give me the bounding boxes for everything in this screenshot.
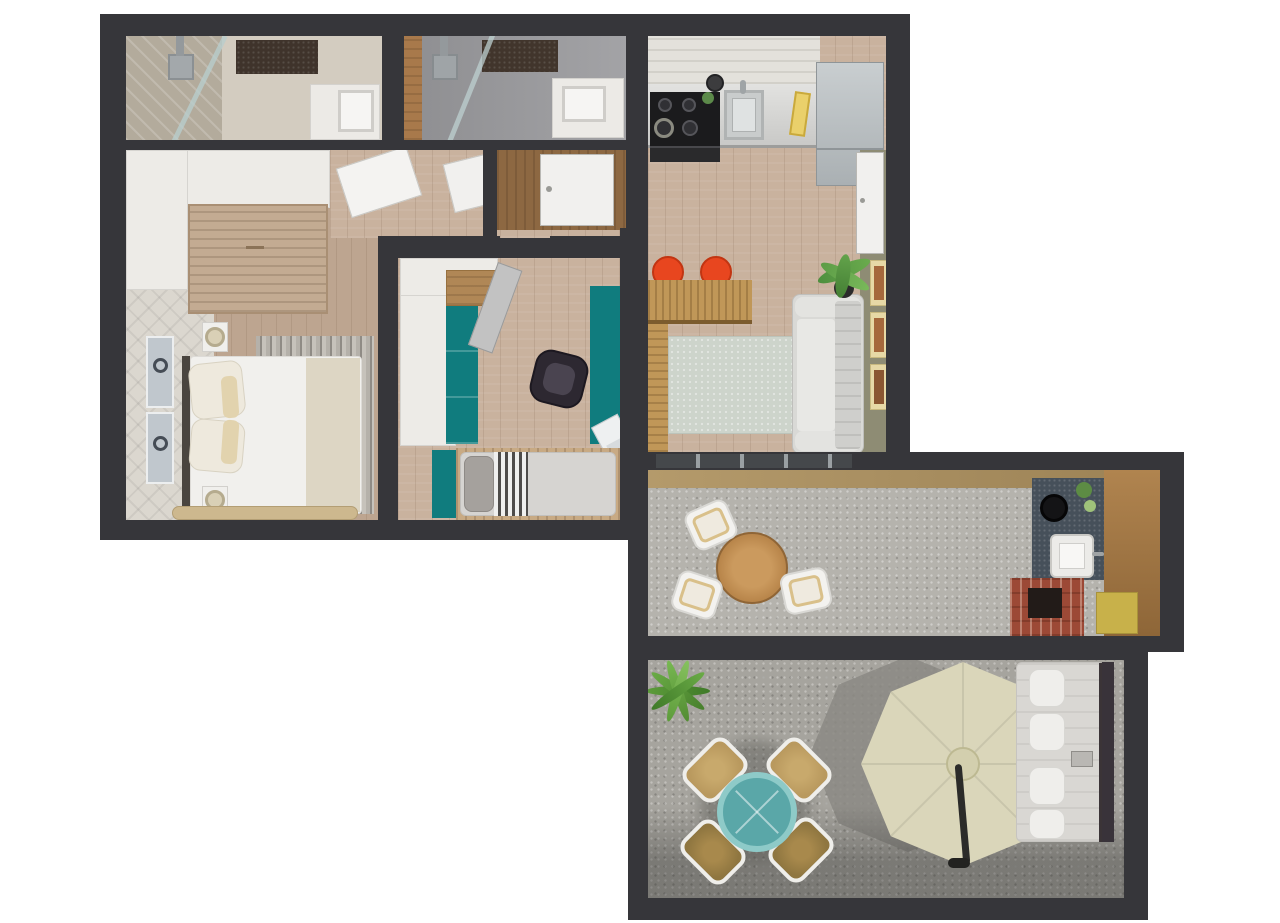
- art-print: [874, 318, 884, 352]
- sofa-seat: [797, 319, 835, 431]
- bed-pillow: [464, 456, 494, 512]
- chair-cushion: [787, 574, 824, 608]
- folded-blanket: [306, 358, 360, 512]
- wall-art-bw: [146, 336, 174, 408]
- kids-room-office: [398, 258, 620, 520]
- accent-cushion: [220, 419, 239, 464]
- shower-mat: [236, 40, 318, 74]
- balcony-chair: [778, 565, 834, 616]
- wall-bedroom-office: [378, 236, 398, 520]
- umbrella-base: [948, 858, 970, 868]
- sofa-back: [835, 301, 861, 449]
- yellow-mat: [1096, 592, 1138, 634]
- balcony-side-door: [856, 152, 884, 254]
- faucet: [740, 80, 746, 94]
- accent-cushion: [221, 375, 240, 418]
- hall-divider-wall: [483, 150, 497, 238]
- sink-basin: [732, 98, 756, 132]
- double-sun-lounger: [1016, 662, 1104, 842]
- chair-seat: [541, 361, 577, 397]
- grass-plant: [648, 660, 711, 722]
- wardrobe-handles: [246, 246, 264, 249]
- shower-arm: [176, 36, 184, 56]
- kitchen-living-room: [648, 36, 886, 452]
- bar-counter: [648, 280, 752, 324]
- striped-blanket: [494, 452, 528, 516]
- vanity-sink: [338, 90, 374, 132]
- hob-burner: [682, 98, 696, 112]
- living-rug: [668, 336, 796, 434]
- shower-mat: [482, 40, 558, 72]
- outdoor-sink: [1050, 534, 1094, 578]
- tiled-wall-band: [126, 36, 222, 140]
- brick-backsplash: [648, 36, 820, 84]
- lounger-pillow: [1029, 669, 1065, 707]
- potted-plant: [812, 248, 876, 304]
- floor-plan-stage: [0, 0, 1280, 923]
- garden-floor: [648, 660, 1124, 898]
- shower-arm: [440, 36, 448, 56]
- bed-headboard-panel: [432, 450, 456, 518]
- vanity-sink: [562, 86, 606, 122]
- hob-burner: [682, 120, 698, 136]
- wheel-print: [153, 358, 168, 373]
- office-chair: [526, 346, 591, 411]
- wall-art: [870, 312, 886, 358]
- wall-art: [870, 364, 886, 410]
- round-wood-table: [716, 532, 788, 604]
- wall-office-top-left: [378, 236, 500, 258]
- art-print: [874, 266, 884, 300]
- chair-cushion: [691, 506, 732, 545]
- wardrobe-white: [126, 150, 188, 290]
- open-door-panel: [336, 150, 422, 218]
- wall-art: [870, 260, 886, 306]
- chair-cushion: [677, 577, 716, 614]
- lounger-pillow: [1029, 713, 1065, 751]
- round-grill: [1040, 494, 1068, 522]
- lounger-pillow: [1029, 767, 1065, 805]
- herb-pot: [1084, 500, 1096, 512]
- herb-pot: [702, 92, 714, 104]
- foot-bench: [172, 506, 358, 520]
- lounger-pillow: [1029, 809, 1065, 839]
- shower-head: [432, 54, 458, 80]
- wheel-print: [153, 436, 168, 451]
- hob-burner: [654, 118, 674, 138]
- wood-accent-strip: [404, 36, 422, 140]
- shower-head: [168, 54, 194, 80]
- wardrobe-wood-top: [188, 204, 328, 314]
- lounger-tray: [1071, 751, 1093, 767]
- bbq-opening: [1028, 588, 1062, 618]
- hob-burner: [658, 98, 672, 112]
- umbrella-cap: [946, 747, 980, 781]
- art-print: [874, 370, 884, 404]
- living-room-window: [656, 454, 852, 468]
- table-lamp: [205, 327, 225, 347]
- sink-basin: [1059, 543, 1085, 569]
- cooking-pot: [706, 74, 724, 92]
- outdoor-faucet: [1092, 552, 1104, 556]
- wall-art-bw: [146, 412, 174, 484]
- door-handle: [546, 186, 552, 192]
- hallway: [330, 150, 626, 238]
- brick-bbq: [1010, 578, 1084, 636]
- oven: [650, 146, 720, 162]
- bathroom-2: [404, 36, 626, 140]
- sofa: [792, 294, 864, 452]
- garden-walls: [628, 640, 1148, 920]
- balcony-walls: [628, 452, 1184, 652]
- glass-partition: [446, 36, 496, 140]
- teal-round-table: [717, 772, 797, 852]
- door-handle: [860, 198, 865, 203]
- herb-pot: [1076, 482, 1092, 498]
- lounger-side-shade: [1102, 662, 1114, 842]
- bathroom-1: [126, 36, 382, 140]
